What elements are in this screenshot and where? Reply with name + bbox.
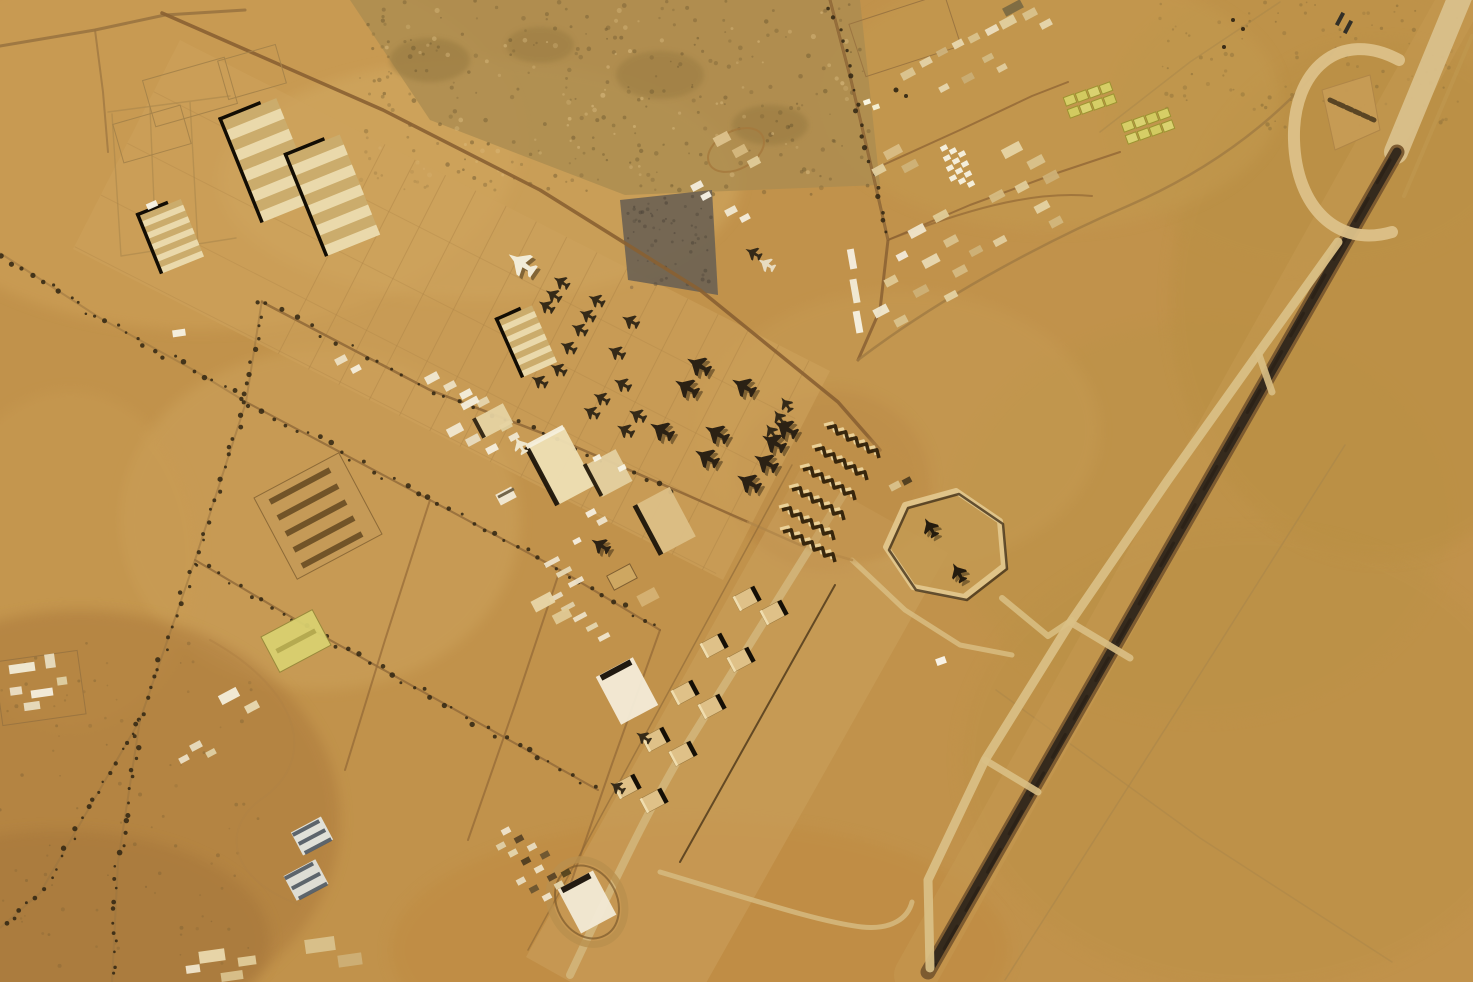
scrub-blob bbox=[506, 27, 574, 63]
scrub-blob bbox=[732, 105, 808, 145]
satellite-view bbox=[0, 0, 1473, 982]
satellite-image bbox=[0, 0, 1473, 982]
scrub-blob bbox=[390, 38, 470, 82]
